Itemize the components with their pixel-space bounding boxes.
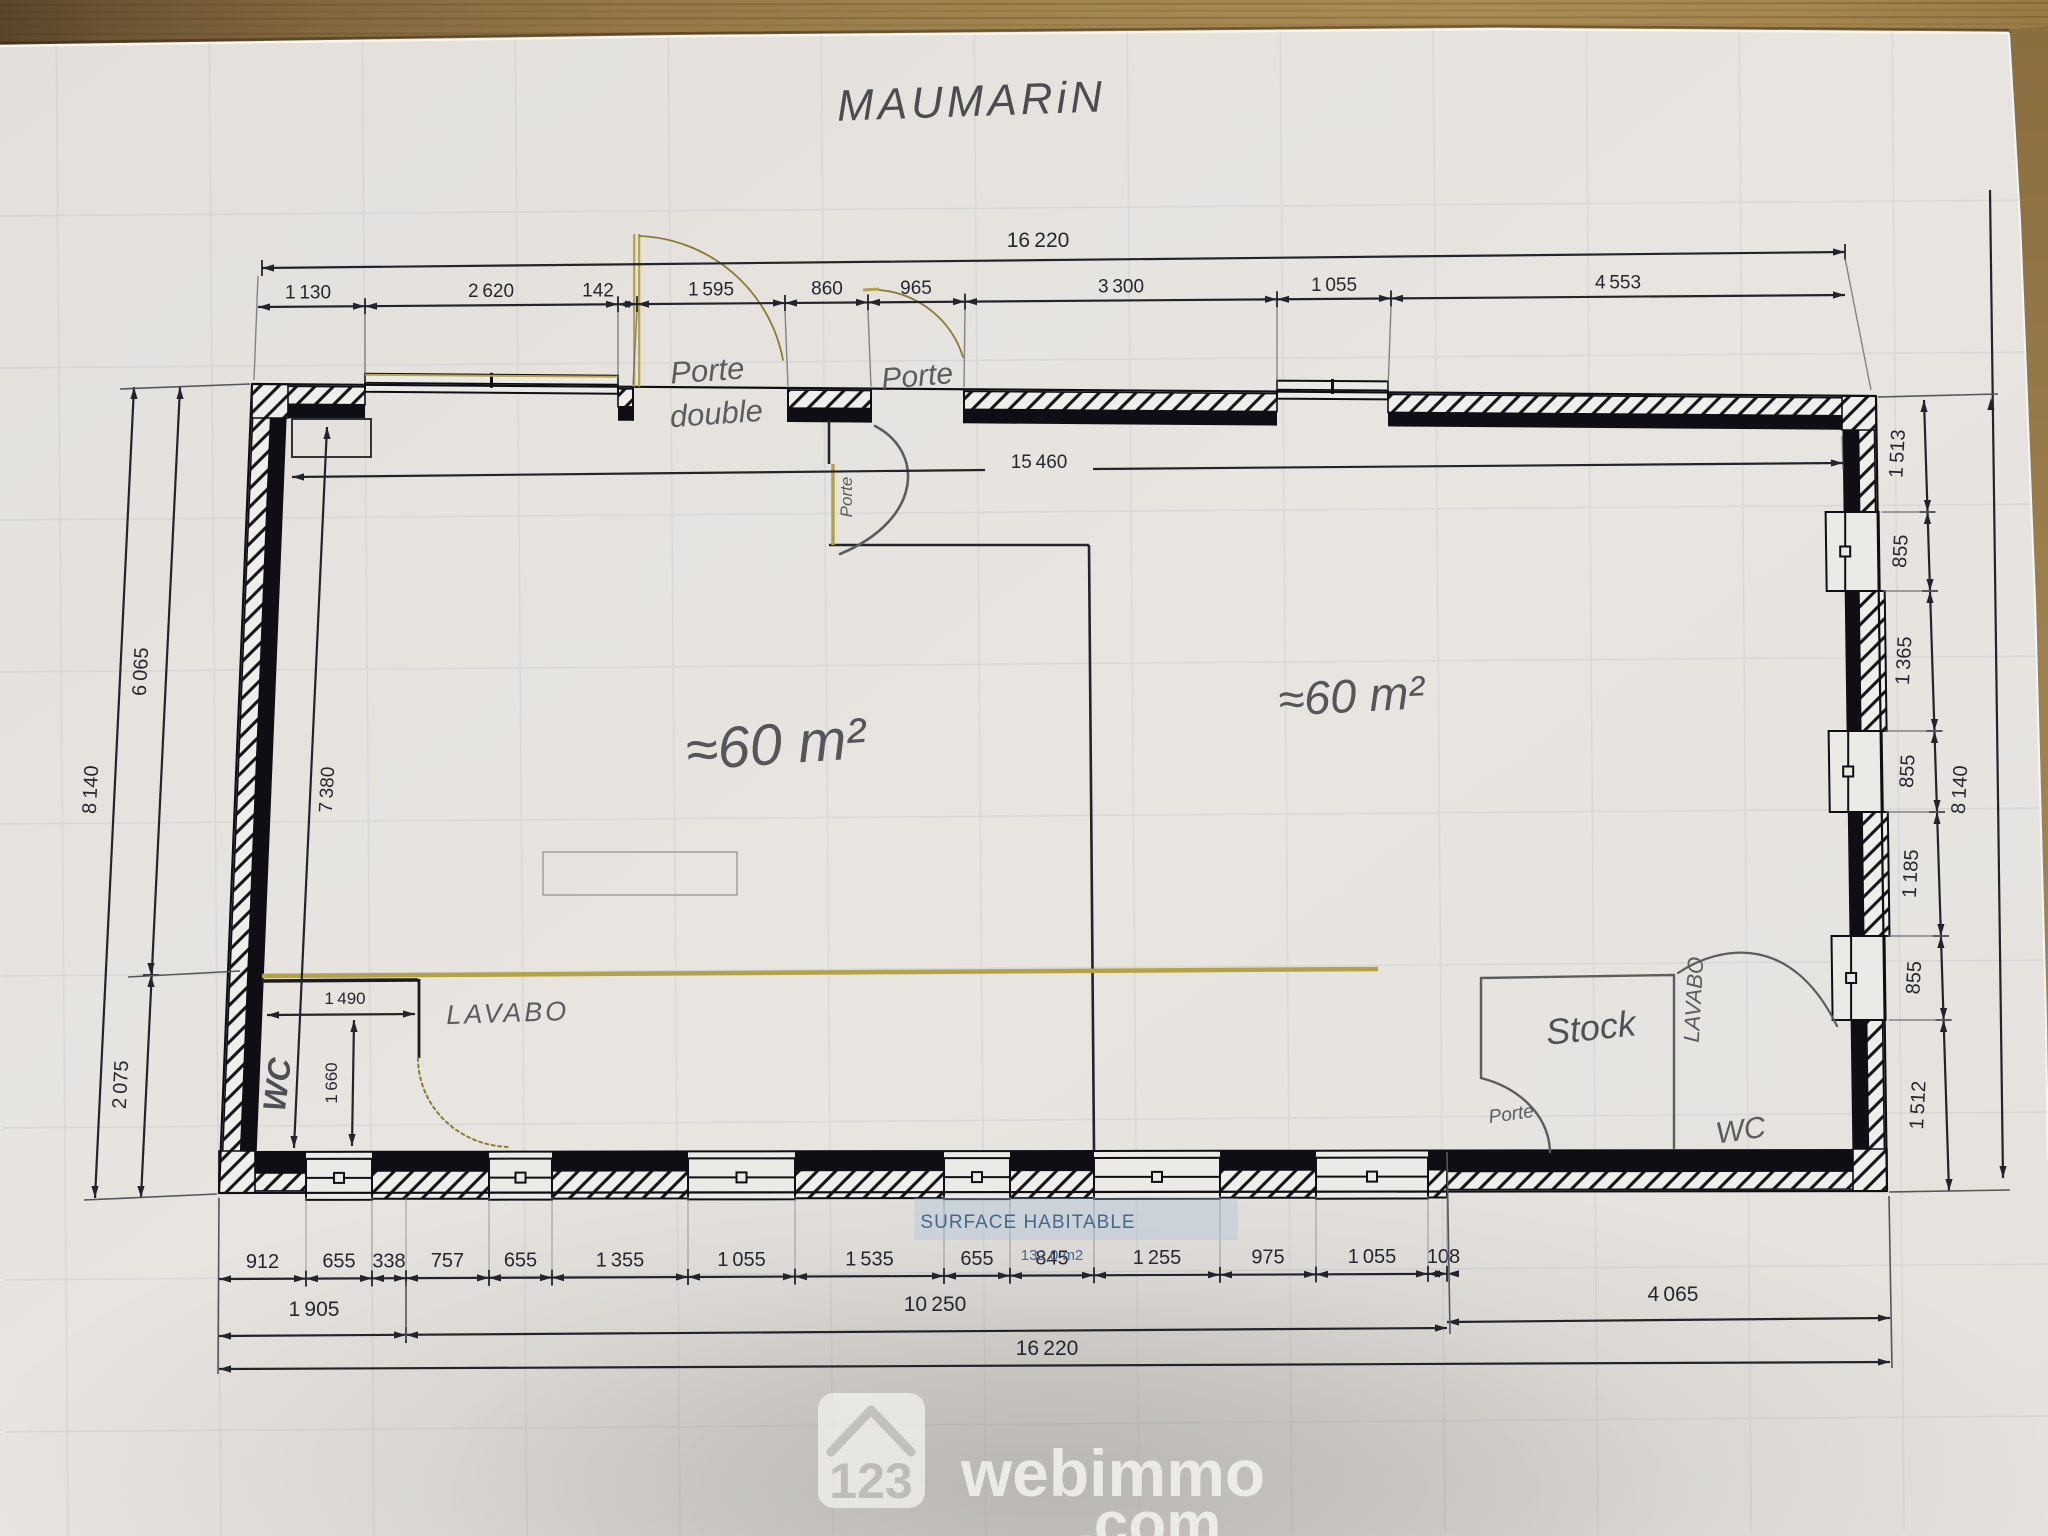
svg-text:1 595: 1 595 [688, 280, 734, 301]
svg-text:LAVABO: LAVABO [446, 996, 570, 1030]
svg-text:1 512: 1 512 [1906, 1080, 1931, 1130]
svg-text:3 300: 3 300 [1098, 277, 1144, 298]
svg-text:655: 655 [960, 1248, 993, 1270]
svg-text:132,0 m2: 132,0 m2 [1021, 1247, 1084, 1264]
svg-text:MAUMARiN: MAUMARiN [836, 72, 1107, 130]
svg-text:757: 757 [431, 1250, 464, 1272]
svg-text:10 250: 10 250 [904, 1293, 967, 1316]
svg-text:1 130: 1 130 [285, 283, 331, 304]
svg-text:SURFACE HABITABLE: SURFACE HABITABLE [920, 1212, 1135, 1233]
svg-text:16 220: 16 220 [1016, 1337, 1079, 1360]
svg-text:855: 855 [1896, 754, 1920, 788]
svg-text:912: 912 [246, 1251, 279, 1273]
svg-text:4 553: 4 553 [1595, 273, 1641, 294]
svg-text:1 660: 1 660 [322, 1062, 341, 1103]
svg-text:1 055: 1 055 [1311, 275, 1357, 296]
svg-text:≈60 m²: ≈60 m² [684, 706, 871, 784]
svg-text:1 490: 1 490 [324, 989, 365, 1008]
svg-text:8 140: 8 140 [1948, 765, 1973, 815]
svg-text:≈60 m²: ≈60 m² [1277, 665, 1428, 726]
svg-text:1 055: 1 055 [1348, 1246, 1397, 1268]
svg-text:1 055: 1 055 [717, 1249, 766, 1271]
svg-text:965: 965 [900, 278, 932, 299]
svg-text:6 065: 6 065 [129, 647, 154, 697]
svg-text:.com: .com [1077, 1490, 1222, 1536]
svg-text:975: 975 [1251, 1247, 1284, 1269]
svg-text:108: 108 [1427, 1246, 1460, 1268]
svg-text:2 620: 2 620 [468, 281, 514, 302]
svg-text:338: 338 [372, 1250, 405, 1272]
svg-text:Porte: Porte [837, 477, 856, 518]
svg-text:855: 855 [1889, 534, 1913, 568]
svg-text:2 075: 2 075 [109, 1060, 134, 1110]
svg-text:142: 142 [582, 280, 614, 301]
svg-text:16 220: 16 220 [1007, 229, 1070, 252]
svg-text:655: 655 [322, 1251, 355, 1273]
svg-text:7 380: 7 380 [316, 766, 339, 813]
svg-text:1 255: 1 255 [1133, 1247, 1182, 1269]
svg-text:1 185: 1 185 [1899, 849, 1924, 899]
svg-text:15 460: 15 460 [1011, 452, 1068, 473]
svg-text:Porte: Porte [880, 357, 954, 396]
svg-text:8 140: 8 140 [79, 765, 104, 815]
svg-text:Porte: Porte [669, 350, 745, 390]
svg-text:1 355: 1 355 [596, 1249, 645, 1271]
svg-text:1 535: 1 535 [845, 1248, 894, 1270]
svg-text:WC: WC [256, 1055, 298, 1113]
svg-text:double: double [669, 393, 764, 434]
svg-text:655: 655 [504, 1250, 537, 1272]
svg-text:WC: WC [1714, 1111, 1768, 1151]
svg-text:1 513: 1 513 [1885, 429, 1910, 479]
svg-text:1 365: 1 365 [1892, 636, 1917, 686]
svg-text:860: 860 [811, 279, 843, 300]
svg-text:855: 855 [1902, 960, 1926, 994]
svg-text:4 065: 4 065 [1648, 1283, 1699, 1306]
svg-text:1 905: 1 905 [289, 1298, 340, 1321]
svg-text:123: 123 [829, 1453, 912, 1509]
